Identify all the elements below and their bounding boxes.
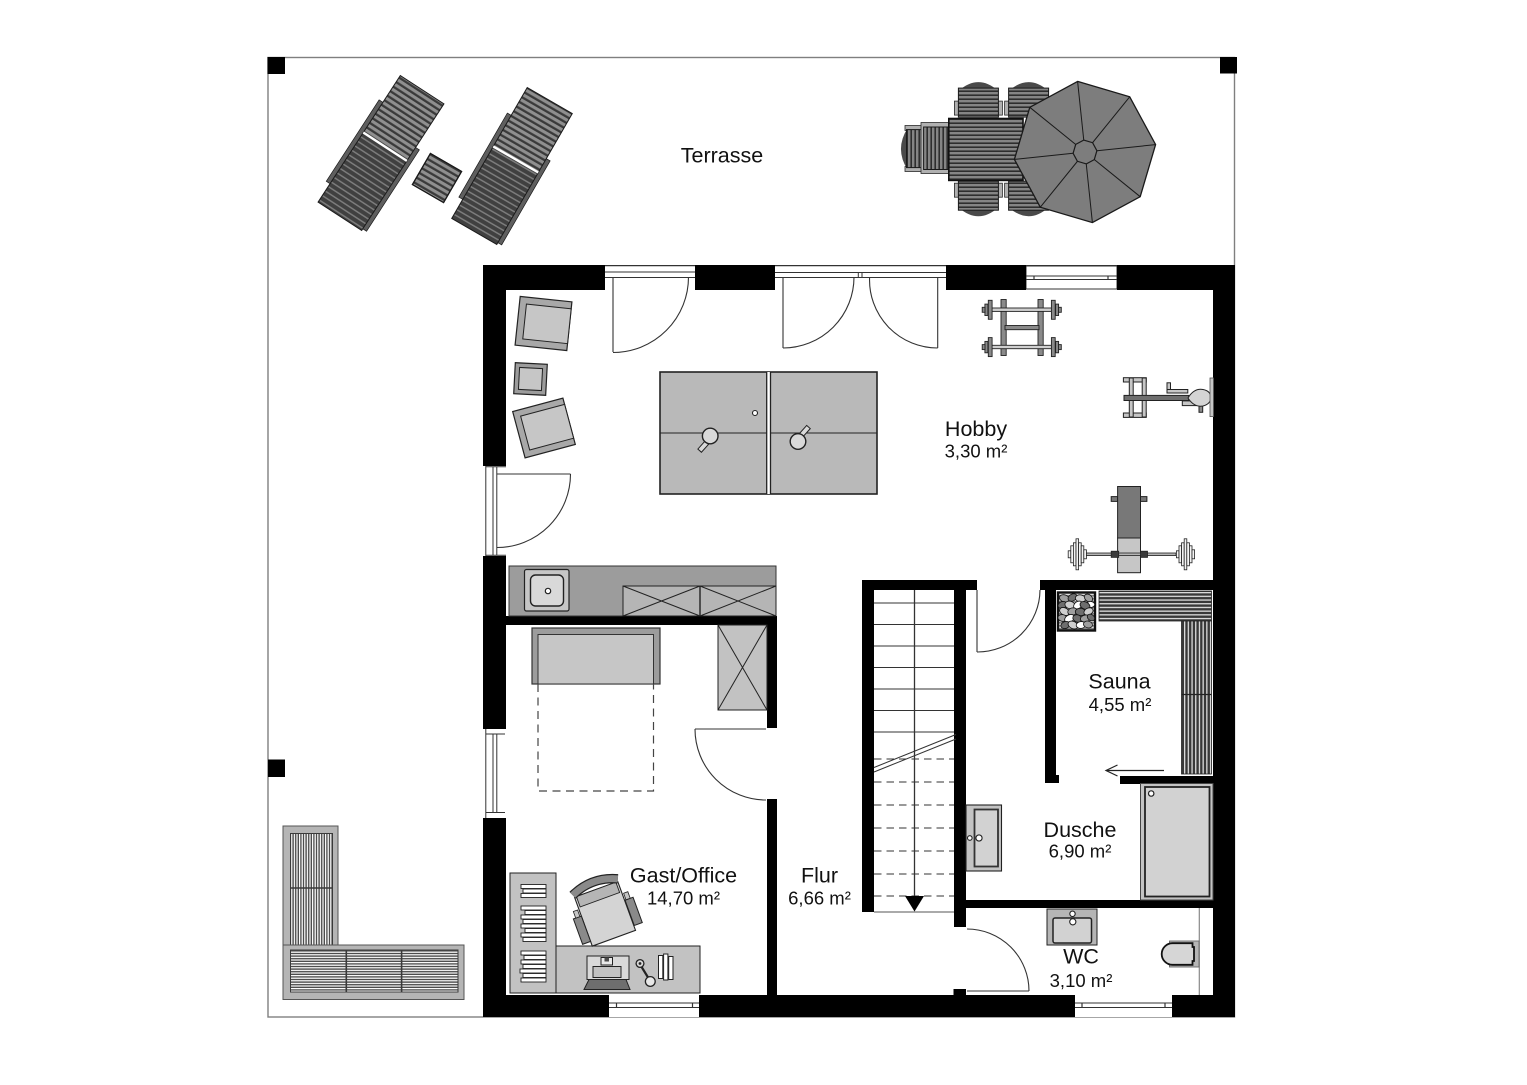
svg-text:3,30 m²: 3,30 m²: [945, 441, 1008, 462]
svg-text:Gast/Office: Gast/Office: [630, 864, 737, 888]
svg-text:Flur: Flur: [801, 864, 838, 888]
svg-text:3,10 m²: 3,10 m²: [1050, 970, 1113, 991]
svg-text:6,66 m²: 6,66 m²: [788, 888, 851, 909]
svg-text:4,55 m²: 4,55 m²: [1089, 694, 1152, 715]
svg-text:Hobby: Hobby: [945, 417, 1007, 441]
svg-text:Sauna: Sauna: [1088, 670, 1150, 694]
svg-text:6,90 m²: 6,90 m²: [1049, 841, 1112, 862]
svg-text:WC: WC: [1063, 945, 1099, 969]
svg-text:Terrasse: Terrasse: [681, 144, 763, 168]
svg-text:Dusche: Dusche: [1044, 818, 1117, 842]
svg-text:14,70 m²: 14,70 m²: [647, 888, 720, 909]
